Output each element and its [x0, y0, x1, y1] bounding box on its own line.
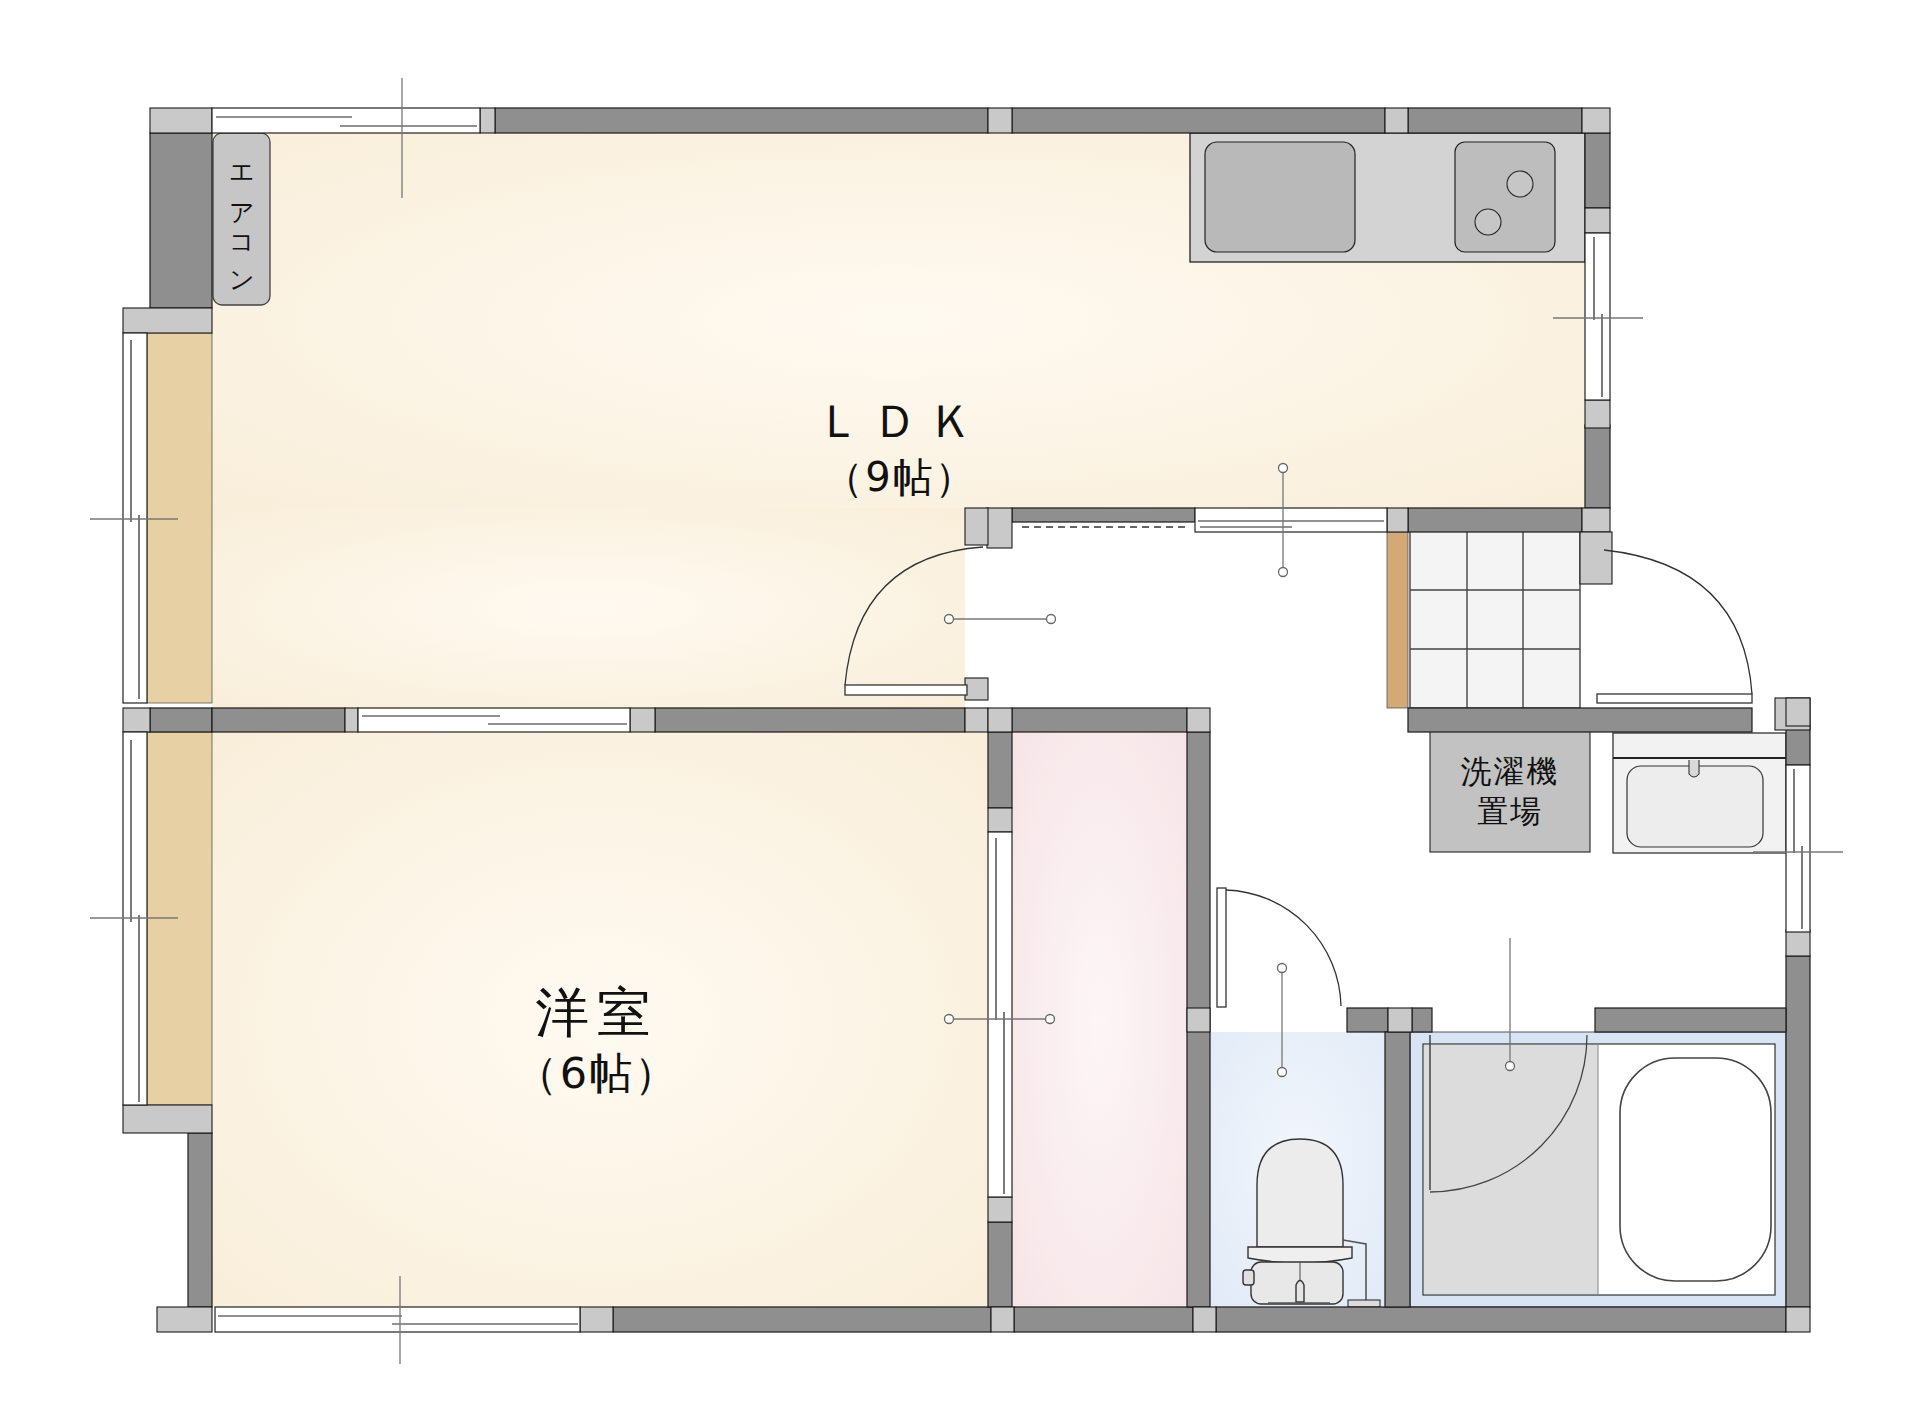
window-left-ldk — [123, 333, 147, 703]
aircon-label: エアコン — [213, 136, 270, 304]
sliding-door-hall — [1195, 508, 1387, 532]
laundry-line1: 洗濯機 — [1461, 751, 1560, 791]
window-top — [212, 108, 480, 133]
ldk-room-label: ＬＤＫ — [770, 396, 1030, 447]
floor-plan-canvas: ＬＤＫ （9帖） 洋室 （6帖） エアコン 洗濯機 置場 — [0, 0, 1920, 1420]
bathtub — [1620, 1058, 1771, 1281]
toilet-spud — [1296, 1281, 1304, 1303]
door-toilet — [1217, 888, 1341, 1007]
burner-icon — [1475, 209, 1501, 235]
toilet-handle — [1243, 1270, 1254, 1285]
floor-plan-drawing — [0, 0, 1920, 1420]
window-right-kitchen — [1585, 233, 1610, 400]
tan-sill-ldk — [147, 333, 212, 703]
ldk-floor-lower — [212, 508, 965, 708]
bathroom — [1410, 1032, 1786, 1307]
faucet-icon — [1689, 760, 1699, 777]
stove — [1455, 142, 1555, 252]
sliding-door-ldk-western — [358, 708, 630, 732]
ldk-size-label: （9帖） — [770, 455, 1030, 499]
shoe-cabinet-grid — [1410, 531, 1580, 708]
window-right-washroom — [1786, 765, 1810, 932]
western-room-label: 洋室 — [467, 983, 727, 1042]
entry-tan-strip — [1387, 532, 1408, 708]
sliding-door-closet — [988, 832, 1012, 1197]
toilet-seat — [1248, 1247, 1352, 1263]
laundry-area-label: 洗濯機 置場 — [1430, 730, 1590, 852]
washbasin — [1613, 733, 1786, 853]
toilet-lid — [1257, 1139, 1343, 1247]
burner-icon — [1507, 171, 1533, 197]
kitchen-sink — [1205, 142, 1355, 252]
kitchen-counter — [1190, 133, 1585, 262]
door-entry — [1597, 550, 1752, 703]
window-bottom — [215, 1307, 580, 1332]
western-room-size-label: （6帖） — [467, 1050, 727, 1097]
washbasin-bowl — [1627, 766, 1763, 847]
laundry-line2: 置場 — [1477, 791, 1543, 831]
